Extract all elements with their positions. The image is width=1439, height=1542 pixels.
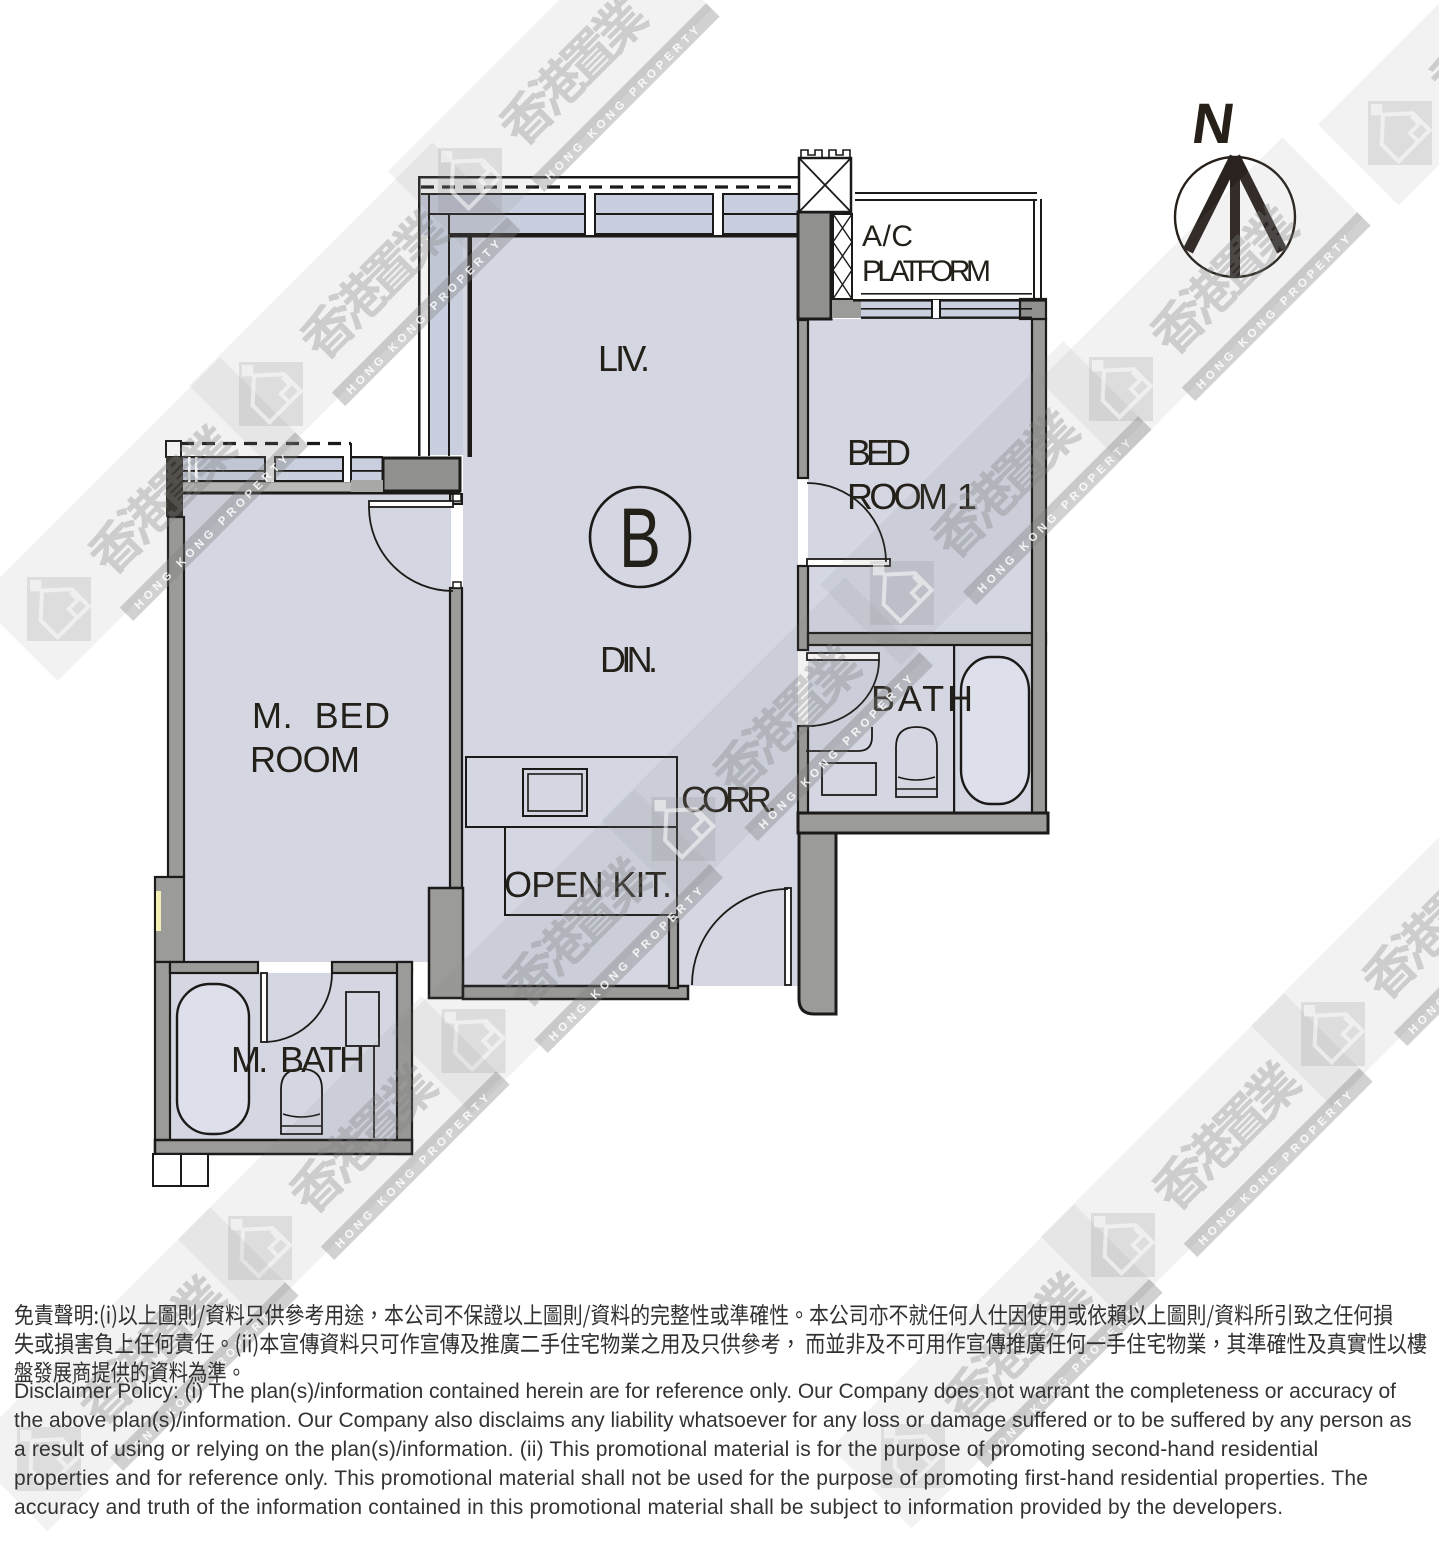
svg-text:LIV.: LIV. xyxy=(598,338,650,379)
svg-text:DIN.: DIN. xyxy=(600,639,658,680)
svg-text:accuracy and truth of the info: accuracy and truth of the information co… xyxy=(14,1496,1283,1519)
svg-text:A/C: A/C xyxy=(862,220,913,253)
svg-text:BED: BED xyxy=(847,432,911,473)
svg-text:properties and for reference o: properties and for reference only. This … xyxy=(14,1467,1368,1490)
svg-text:B: B xyxy=(619,491,661,585)
svg-text:PLATFORM: PLATFORM xyxy=(862,255,991,288)
svg-text:ROOM: ROOM xyxy=(250,739,360,780)
svg-text:the above plan(s)/information.: the above plan(s)/information. Our Compa… xyxy=(14,1409,1412,1432)
svg-text:a result of using or relying o: a result of using or relying on the plan… xyxy=(14,1438,1318,1461)
svg-text:Disclaimer Policy: (i) The pla: Disclaimer Policy: (i) The plan(s)/infor… xyxy=(14,1380,1396,1403)
svg-text:M. BED: M. BED xyxy=(252,695,390,736)
